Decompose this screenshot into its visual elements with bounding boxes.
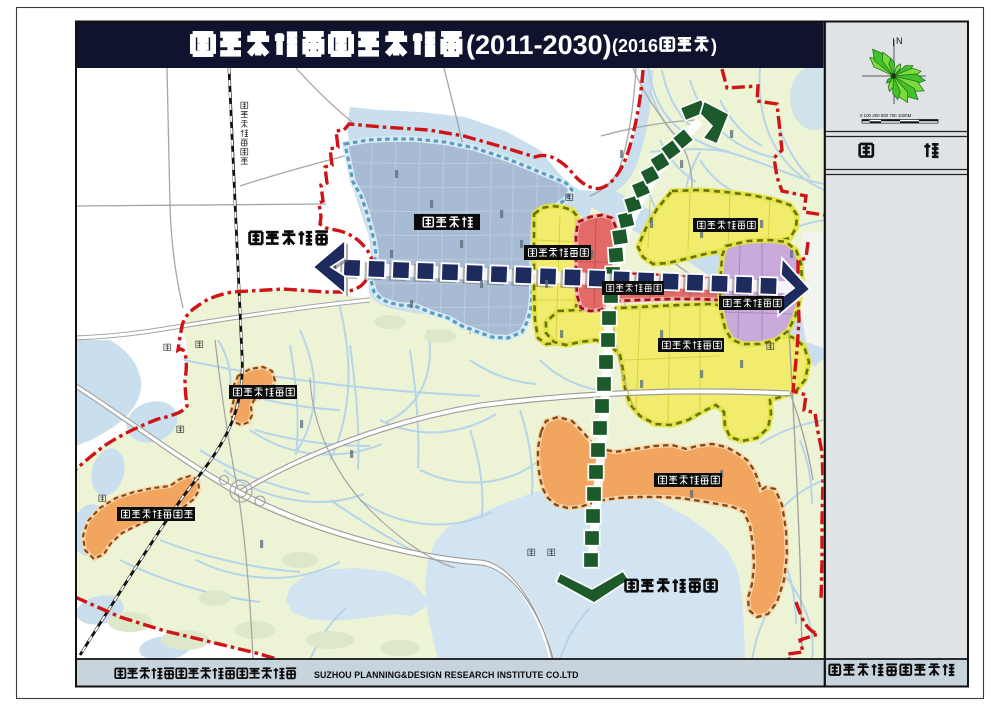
svg-text:SUZHOU PLANNING&DESIGN RESEARC: SUZHOU PLANNING&DESIGN RESEARCH INSTITUT… bbox=[314, 670, 579, 680]
svg-text:0 100 250 500 750: 0 100 250 500 750 1000M bbox=[860, 113, 912, 118]
svg-text:N: N bbox=[896, 36, 903, 46]
svg-text:(2011-2030): (2011-2030) bbox=[466, 30, 612, 60]
svg-text:): ) bbox=[711, 36, 717, 56]
svg-text:(2016: (2016 bbox=[612, 36, 658, 56]
